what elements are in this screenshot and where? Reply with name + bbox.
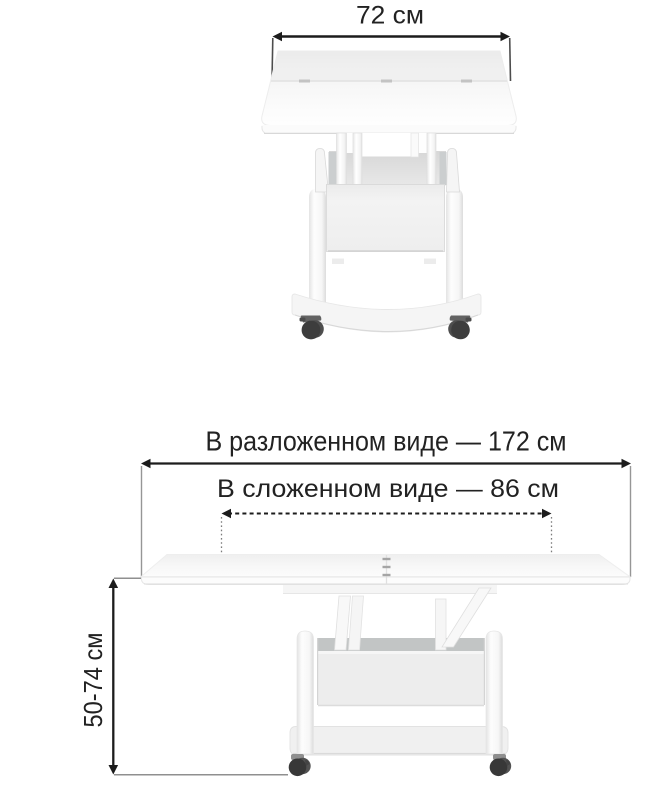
svg-text:50-74 см: 50-74 см: [78, 633, 108, 728]
svg-text:В сложенном виде — 86 см: В сложенном виде — 86 см: [217, 475, 559, 503]
svg-text:В разложенном виде — 172 см: В разложенном виде — 172 см: [206, 426, 567, 457]
svg-text:72 см: 72 см: [356, 2, 424, 30]
